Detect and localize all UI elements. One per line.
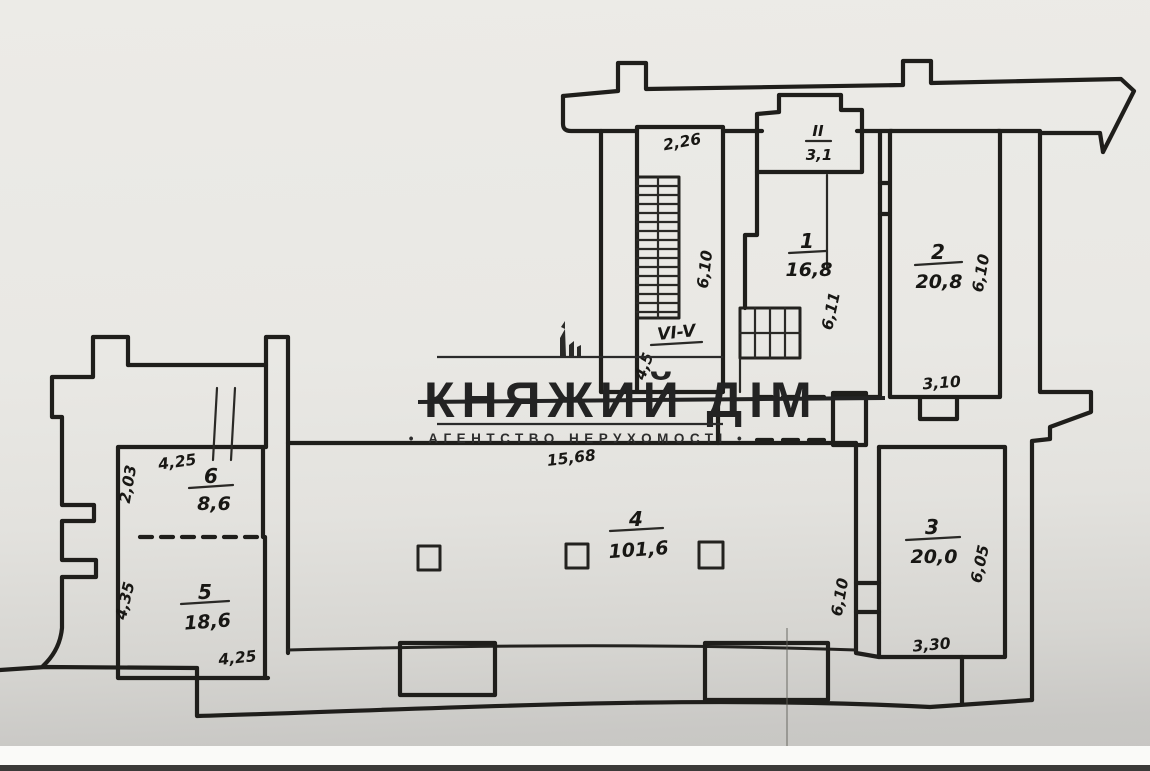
room-2-depth-dim: 6,10 — [969, 253, 993, 294]
room-1-fraction-line — [789, 251, 826, 253]
scan-edge-bar — [0, 765, 1150, 771]
room-4-columns — [418, 542, 723, 570]
room-3-depth-dim: 6,05 — [967, 543, 993, 584]
room-6-fraction-line — [189, 485, 233, 488]
room-6-number: 6 — [204, 464, 218, 488]
room-3-number: 3 — [925, 515, 939, 539]
room-3-fraction-line — [906, 537, 960, 540]
room-3-width-dim: 3,30 — [912, 634, 952, 655]
vestibule-number: II — [812, 122, 824, 140]
room-4-fraction-line — [610, 528, 663, 531]
paper-fold-line — [786, 628, 788, 760]
agency-watermark: КНЯЖИЙ ДІМ • АГЕНТСТВО НЕРУХОМОСТІ • — [409, 321, 885, 446]
room-5-width-dim: 4,25 — [217, 647, 258, 669]
floor-plan-scan: 2,26 6,10 VI-V 4,5 II 3,1 1 16,8 6,11 2 … — [0, 0, 1150, 771]
room-1-area: 16,8 — [786, 259, 833, 281]
room-5-fraction-line — [181, 601, 229, 604]
room-2-number: 2 — [931, 240, 945, 264]
stair-section-label: VI-V — [656, 321, 698, 345]
room-5-area: 18,6 — [183, 609, 231, 634]
building-towers-icon — [560, 321, 581, 357]
watermark-subtitle: • АГЕНТСТВО НЕРУХОМОСТІ • — [409, 431, 747, 446]
room-3-area: 20,0 — [911, 546, 958, 568]
stair-treads — [637, 177, 679, 318]
room-6-width-dim: 4,25 — [156, 450, 197, 473]
room-5-depth-dim: 4,35 — [112, 580, 139, 622]
room-2-width-dim: 3,10 — [922, 373, 962, 394]
room-2-area: 20,8 — [916, 271, 963, 293]
vestibule-area: 3,1 — [806, 146, 833, 164]
room-6-area: 8,6 — [197, 493, 231, 515]
room-2-fraction-line — [915, 262, 962, 265]
stair-hall-width-dim: 2,26 — [662, 130, 703, 154]
room-4-width-dim: 15,68 — [546, 446, 597, 470]
floor-plan-drawing: 2,26 6,10 VI-V 4,5 II 3,1 1 16,8 6,11 2 … — [0, 0, 1150, 771]
room-4-area: 101,6 — [608, 537, 669, 563]
stair-hall-depth-dim: 6,10 — [694, 249, 717, 289]
room-1-number: 1 — [800, 229, 814, 253]
porch-left — [400, 643, 495, 695]
porches — [400, 643, 828, 700]
room-4-depth-dim: 6,10 — [828, 577, 852, 618]
porch-right — [705, 643, 828, 700]
room-5-number: 5 — [198, 580, 212, 604]
room-4-number: 4 — [628, 507, 643, 531]
room-1-depth-dim: 6,11 — [818, 290, 844, 331]
